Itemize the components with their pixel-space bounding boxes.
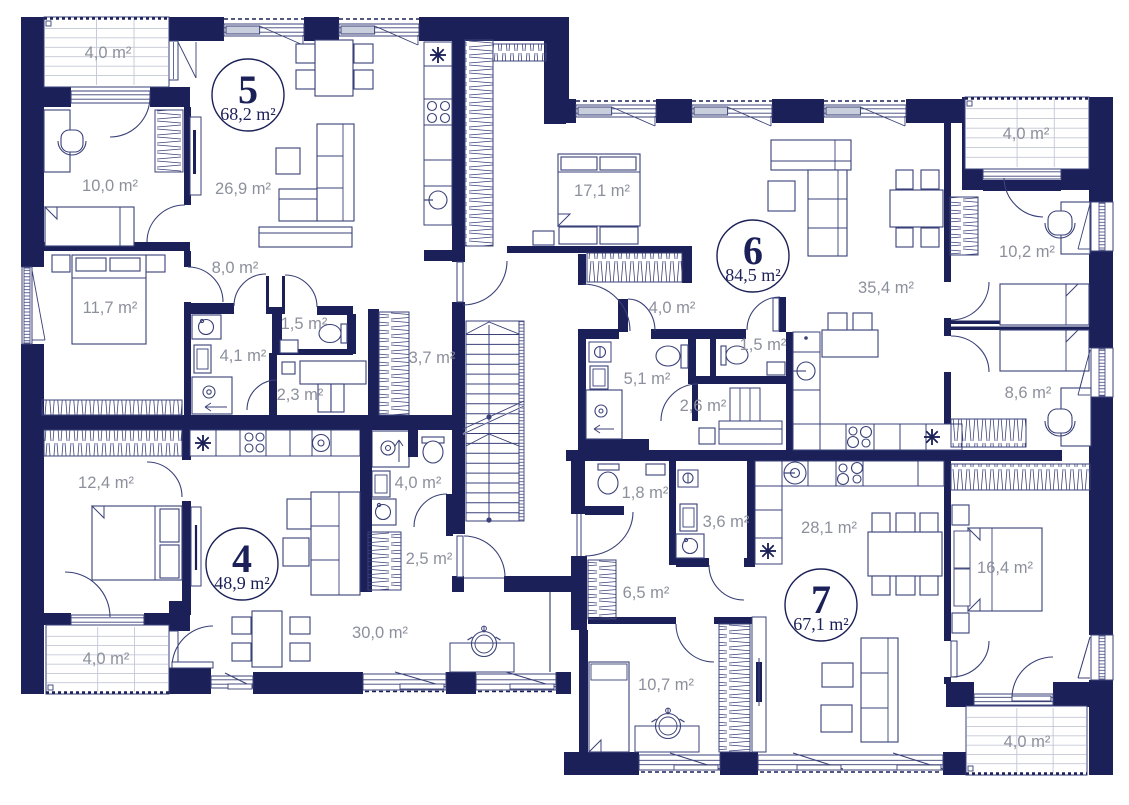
svg-text:4,0 m²: 4,0 m² bbox=[83, 650, 130, 668]
svg-text:10,7 m²: 10,7 m² bbox=[638, 676, 694, 694]
svg-text:12,4 m²: 12,4 m² bbox=[78, 474, 134, 492]
svg-text:4,0 m²: 4,0 m² bbox=[395, 474, 442, 492]
svg-text:10,0 m²: 10,0 m² bbox=[82, 177, 138, 195]
svg-text:17,1 m²: 17,1 m² bbox=[574, 182, 630, 200]
svg-text:10,2 m²: 10,2 m² bbox=[999, 243, 1055, 261]
svg-text:84,5 m²: 84,5 m² bbox=[725, 265, 780, 285]
svg-text:2,6 m²: 2,6 m² bbox=[680, 397, 727, 415]
svg-text:28,1 m²: 28,1 m² bbox=[801, 519, 857, 537]
svg-text:3,7 m²: 3,7 m² bbox=[409, 349, 456, 367]
svg-text:16,4 m²: 16,4 m² bbox=[977, 559, 1033, 577]
svg-text:3,6 m²: 3,6 m² bbox=[703, 513, 750, 531]
svg-text:30,0 m²: 30,0 m² bbox=[352, 624, 408, 642]
svg-text:4,0 m²: 4,0 m² bbox=[1003, 125, 1050, 143]
svg-text:5,1 m²: 5,1 m² bbox=[624, 370, 671, 388]
svg-text:8,0 m²: 8,0 m² bbox=[212, 259, 259, 277]
svg-text:48,9 m²: 48,9 m² bbox=[214, 573, 269, 593]
svg-text:11,7 m²: 11,7 m² bbox=[83, 299, 138, 317]
svg-text:6,5 m²: 6,5 m² bbox=[623, 584, 670, 602]
svg-text:4,0 m²: 4,0 m² bbox=[85, 44, 132, 62]
svg-text:1,5 m²: 1,5 m² bbox=[281, 315, 328, 333]
svg-text:2,3 m²: 2,3 m² bbox=[277, 386, 324, 404]
svg-text:4,1 m²: 4,1 m² bbox=[220, 347, 267, 365]
svg-text:1,8 m²: 1,8 m² bbox=[622, 484, 669, 502]
svg-text:68,2 m²: 68,2 m² bbox=[220, 104, 275, 124]
svg-text:26,9 m²: 26,9 m² bbox=[215, 180, 271, 198]
svg-text:8,6 m²: 8,6 m² bbox=[1005, 384, 1052, 402]
svg-text:67,1 m²: 67,1 m² bbox=[793, 614, 848, 634]
svg-text:4,0 m²: 4,0 m² bbox=[1004, 733, 1051, 751]
svg-text:35,4 m²: 35,4 m² bbox=[858, 279, 914, 297]
svg-text:2,5 m²: 2,5 m² bbox=[406, 550, 453, 568]
svg-text:1,5 m²: 1,5 m² bbox=[740, 336, 787, 354]
svg-text:4,0 m²: 4,0 m² bbox=[649, 299, 696, 317]
